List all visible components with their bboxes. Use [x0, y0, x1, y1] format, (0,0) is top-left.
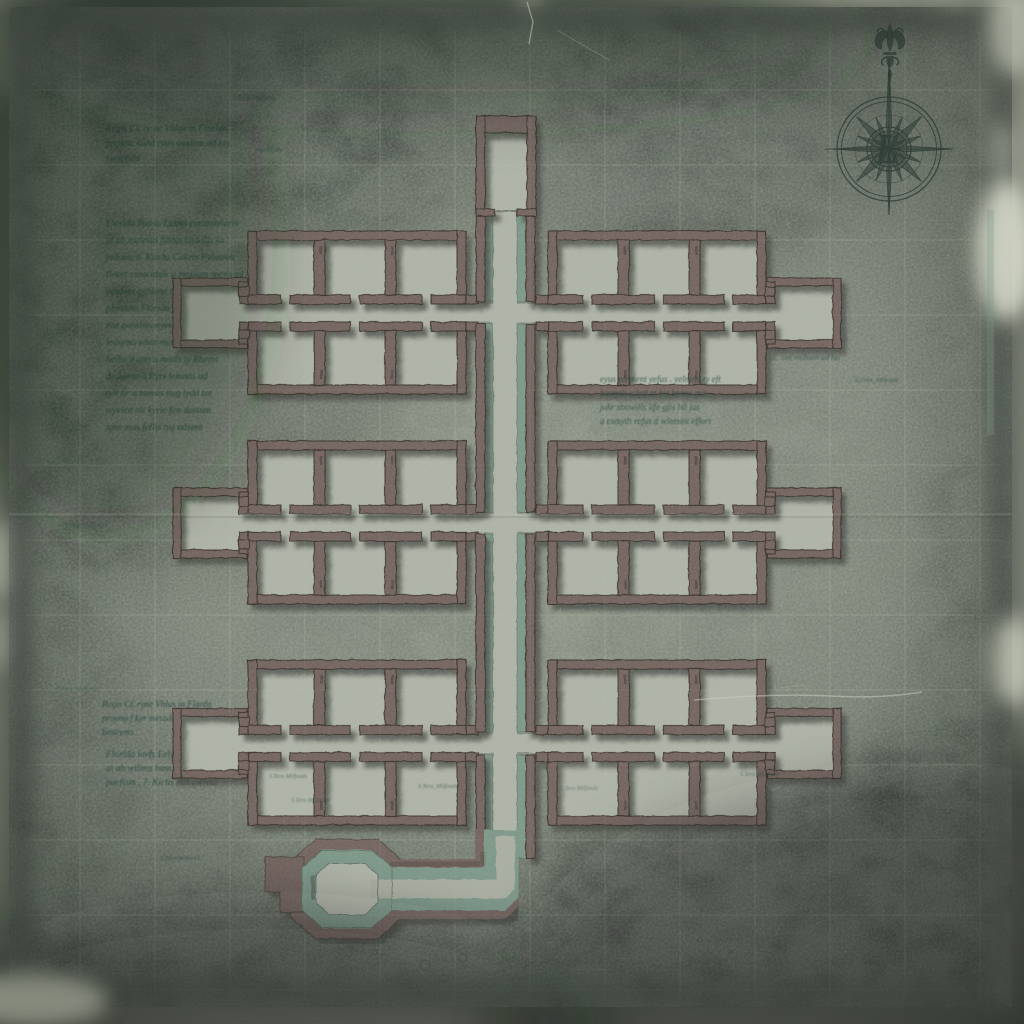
svg-text:L: L	[874, 127, 898, 173]
